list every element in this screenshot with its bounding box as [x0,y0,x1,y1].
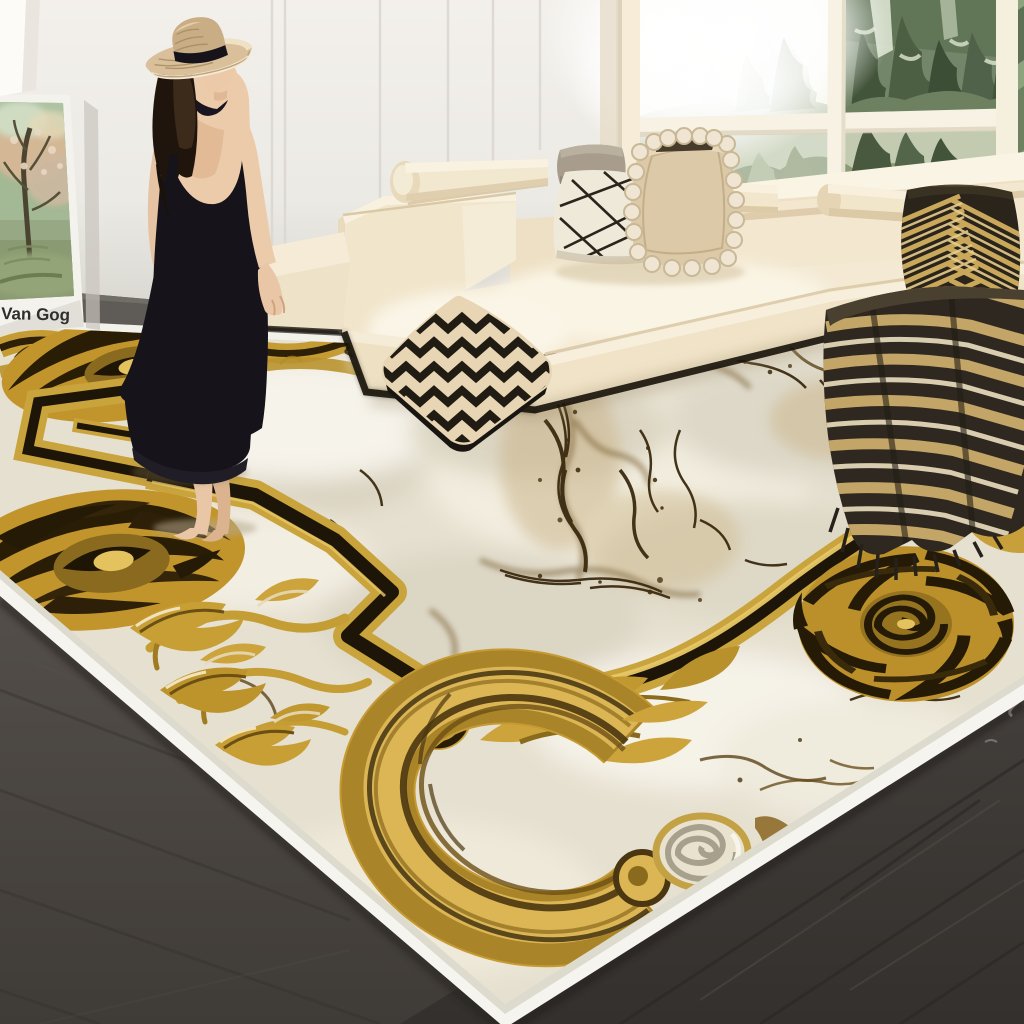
svg-text:Van Gog: Van Gog [1,304,70,325]
